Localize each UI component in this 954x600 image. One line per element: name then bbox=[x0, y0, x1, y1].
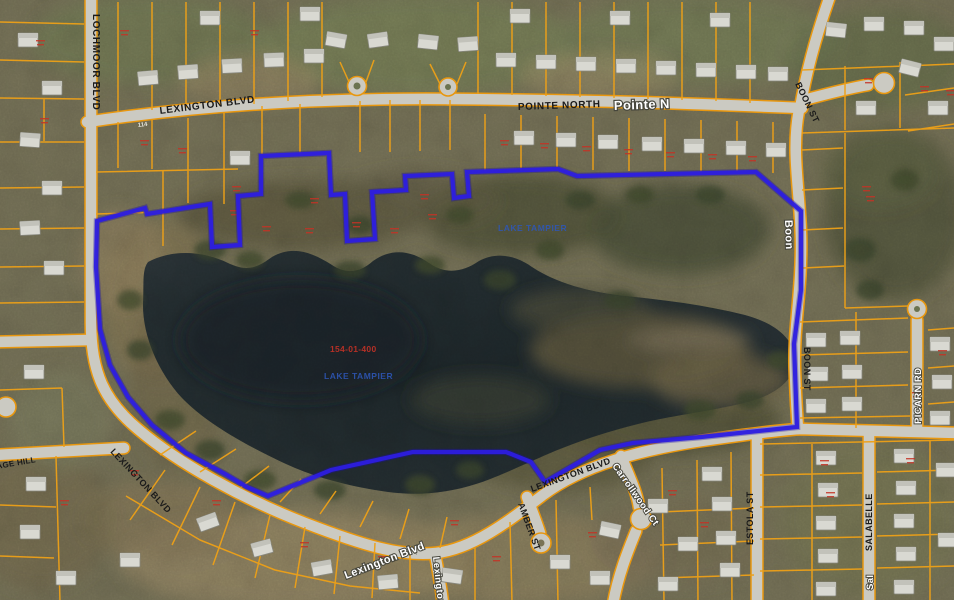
street-label-lochmoor-blvd: LOCHMOOR BLVD bbox=[90, 14, 101, 111]
road-label-pointe-n: Pointe N bbox=[614, 96, 670, 113]
street-label-estola-st: ESTOLA ST bbox=[745, 491, 755, 545]
lake-label-lower: LAKE TAMPIER bbox=[324, 371, 393, 381]
road-label-salabelle: Sal bbox=[865, 575, 876, 590]
street-label-boon-mid: BOON ST bbox=[802, 347, 812, 391]
street-label-salabelle: SALABELLE bbox=[864, 493, 874, 551]
road-marker-114: 114 bbox=[138, 122, 149, 129]
aerial-map[interactable]: LOCHMOOR BLVD LEXINGTON BLVD POINTE NORT… bbox=[0, 0, 954, 600]
lake-label-upper: LAKE TAMPIER bbox=[498, 223, 567, 233]
road-label-boon: Boon bbox=[782, 220, 795, 250]
road-label-picarn: PICARN RD bbox=[913, 368, 924, 424]
photo-grain-fine bbox=[0, 0, 954, 600]
map-viewport[interactable]: LOCHMOOR BLVD LEXINGTON BLVD POINTE NORT… bbox=[0, 0, 954, 600]
parcel-id-label: 154-01-400 bbox=[330, 344, 376, 354]
